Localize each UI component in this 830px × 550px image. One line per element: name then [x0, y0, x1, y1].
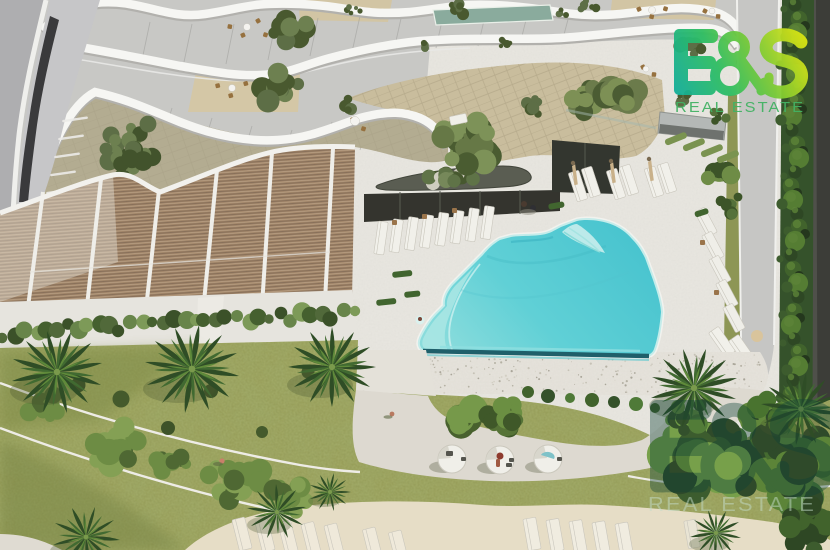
svg-text:REAL ESTATE: REAL ESTATE: [648, 494, 816, 516]
svg-text:REAL ESTATE: REAL ESTATE: [675, 100, 805, 116]
